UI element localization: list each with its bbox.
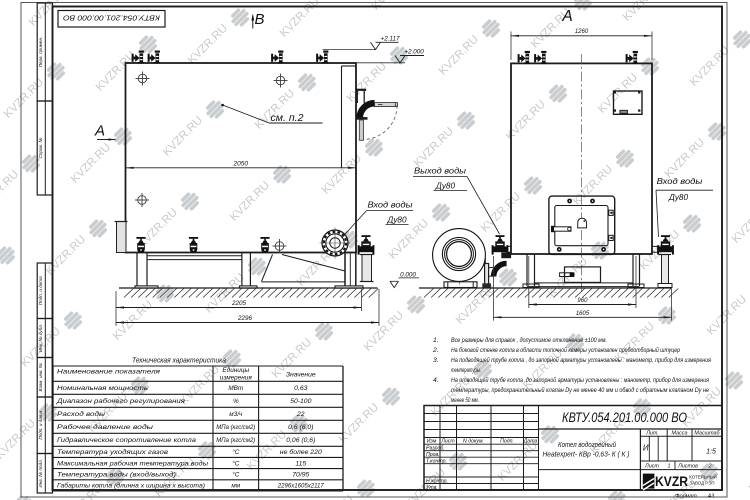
svg-text:KVZR: KVZR: [655, 474, 688, 489]
svg-text:Перв. примен.: Перв. примен.: [38, 37, 43, 68]
svg-text:На боковой стенке котла в обла: На боковой стенке котла в области топочн…: [451, 346, 680, 354]
svg-text:0,6 (6,0): 0,6 (6,0): [288, 424, 313, 431]
svg-text:Масштаб: Масштаб: [694, 431, 720, 437]
svg-text:Разраб.: Разраб.: [426, 446, 445, 452]
svg-text:Наименование показателя: Наименование показателя: [57, 369, 160, 376]
svg-text:На подводящей трубе котла ,: На подводящей трубе котла , до запорной …: [451, 356, 711, 364]
svg-text:Лит.: Лит.: [645, 431, 659, 437]
svg-text:Выход воды: Выход воды: [414, 166, 466, 175]
svg-text:1260: 1260: [575, 29, 589, 35]
svg-text:Н.контр.: Н.контр.: [426, 478, 448, 484]
svg-text:И: И: [643, 444, 649, 453]
svg-text:Листов: Листов: [677, 464, 698, 470]
svg-text:Котел водогрейный: Котел водогрейный: [558, 441, 616, 449]
svg-text:Heatexpert- КВр -0,63- К ( К ): Heatexpert- КВр -0,63- К ( К ): [543, 451, 630, 458]
svg-text:1605: 1605: [576, 311, 590, 317]
svg-text:Подп.: Подп.: [500, 439, 514, 445]
svg-text:Утв.: Утв.: [426, 485, 438, 491]
svg-text:Справ. №: Справ. №: [38, 138, 43, 159]
svg-text:КОТЕЛЬНЫЙ: КОТЕЛЬНЫЙ: [689, 474, 717, 479]
svg-text:Пров.: Пров.: [426, 452, 440, 458]
svg-text:МПа (кгс/см2): МПа (кгс/см2): [216, 424, 255, 431]
svg-text:не более 220: не более 220: [280, 448, 322, 456]
svg-text:ЗАВОД РЭП: ЗАВОД РЭП: [689, 481, 714, 486]
svg-text:А: А: [561, 8, 572, 25]
svg-text:2296: 2296: [237, 315, 253, 322]
svg-text:Техническая характеристика: Техническая характеристика: [132, 355, 226, 364]
svg-text:Диапазон рабочего регулировани: Диапазон рабочего регулирования: [56, 397, 186, 405]
svg-text:Температура уходящих газов: Температура уходящих газов: [57, 448, 169, 456]
svg-text:°С: °С: [232, 448, 240, 456]
svg-text:%: %: [233, 398, 239, 405]
svg-text:Вход воды: Вход воды: [368, 200, 413, 209]
svg-text:см. п.2: см. п.2: [271, 112, 304, 124]
svg-text:960: 960: [577, 298, 588, 304]
svg-text:70/95: 70/95: [292, 472, 309, 479]
svg-text:КВТУ.054.201.00.000 ВО: КВТУ.054.201.00.000 ВО: [63, 14, 160, 23]
svg-text:°С: °С: [232, 459, 240, 467]
svg-text:+2.000: +2.000: [404, 48, 424, 55]
svg-text:Максимальная рабочая температу: Максимальная рабочая температура воды: [57, 459, 208, 467]
svg-text:Ду80: Ду80: [668, 193, 689, 202]
svg-text:N докум.: N докум.: [463, 439, 484, 445]
svg-text:Подп. и дата: Подп. и дата: [38, 276, 43, 305]
svg-text:Номинальная мощность: Номинальная мощность: [57, 385, 148, 392]
svg-text:1.: 1.: [433, 337, 439, 344]
svg-text:+2.117: +2.117: [381, 36, 400, 43]
svg-text:Единицы: Единицы: [222, 366, 249, 374]
svg-text:Изм: Изм: [427, 439, 437, 445]
svg-text:2.: 2.: [432, 347, 439, 354]
svg-text:0,06 (0,6): 0,06 (0,6): [286, 437, 315, 444]
svg-text:1:5: 1:5: [706, 449, 716, 456]
svg-text:Взам. инв. №: Взам. инв. №: [38, 363, 43, 391]
svg-text:А3: А3: [707, 493, 715, 499]
svg-text:Подп. и дата: Подп. и дата: [38, 410, 43, 439]
svg-text:3.: 3.: [433, 357, 439, 364]
svg-text:Ду80: Ду80: [435, 181, 456, 190]
svg-text:2: 2: [708, 464, 712, 470]
svg-text:Ду80: Ду80: [386, 215, 407, 224]
svg-text:КВТУ.054.201.00.000 ВО: КВТУ.054.201.00.000 ВО: [562, 409, 687, 425]
svg-text:Температура воды (вход/выход): Температура воды (вход/выход): [57, 471, 176, 479]
svg-text:Дата: Дата: [523, 439, 538, 445]
svg-text:Инв. № дубл.: Инв. № дубл.: [38, 324, 43, 352]
svg-text:B: B: [254, 11, 264, 28]
svg-text:22: 22: [296, 411, 305, 418]
svg-text:115: 115: [295, 460, 306, 467]
svg-text:Расход воды: Расход воды: [57, 410, 105, 418]
svg-text:4.: 4.: [433, 377, 439, 384]
svg-text:0.000: 0.000: [400, 271, 416, 278]
svg-text:Рабочее давление воды: Рабочее давление воды: [57, 423, 153, 431]
svg-text:50-100: 50-100: [290, 398, 311, 405]
svg-text:Значение: Значение: [286, 372, 316, 379]
svg-text:менее 50 мм.: менее 50 мм.: [451, 397, 479, 404]
svg-text:А: А: [94, 123, 105, 140]
svg-text:м3/ч: м3/ч: [229, 411, 243, 418]
svg-text:мм: мм: [231, 483, 240, 490]
svg-text:Формат: Формат: [675, 493, 697, 499]
svg-text:МПа (кгс/см2): МПа (кгс/см2): [216, 437, 255, 444]
svg-text:Гидравлическое сопротивление к: Гидравлическое сопротивление котла: [57, 436, 196, 444]
svg-text:На отводящей трубе котла ,до з: На отводящей трубе котла ,до запорной ар…: [451, 376, 709, 384]
svg-text:Все размеры для справок , допу: Все размеры для справок , допустимое отк…: [451, 336, 607, 344]
svg-text:Лист: Лист: [440, 439, 455, 445]
svg-text:Вход воды: Вход воды: [657, 177, 703, 186]
svg-text:Инв. № подл.: Инв. № подл.: [38, 459, 43, 488]
svg-text:2050: 2050: [233, 160, 249, 167]
svg-text:измерения: измерения: [220, 374, 253, 381]
svg-text:2205: 2205: [231, 300, 247, 307]
svg-text:Габариты котла (длинна х ширин: Габариты котла (длинна х ширина х высота…: [57, 482, 205, 490]
svg-text:0,63: 0,63: [294, 385, 307, 392]
svg-text:Т.контр.: Т.контр.: [426, 459, 447, 465]
svg-text:Лист: Лист: [644, 464, 659, 470]
svg-text:температуры, предохранительный: температуры, предохранительный клапан Dу…: [451, 386, 709, 394]
svg-text:Масса: Масса: [672, 431, 688, 437]
svg-text:°С: °С: [232, 471, 240, 479]
svg-text:2296х1605х2117: 2296х1605х2117: [277, 483, 324, 490]
svg-text:МВт: МВт: [228, 385, 244, 392]
svg-text:температуры.: температуры.: [451, 367, 481, 374]
svg-text:1: 1: [668, 464, 671, 470]
